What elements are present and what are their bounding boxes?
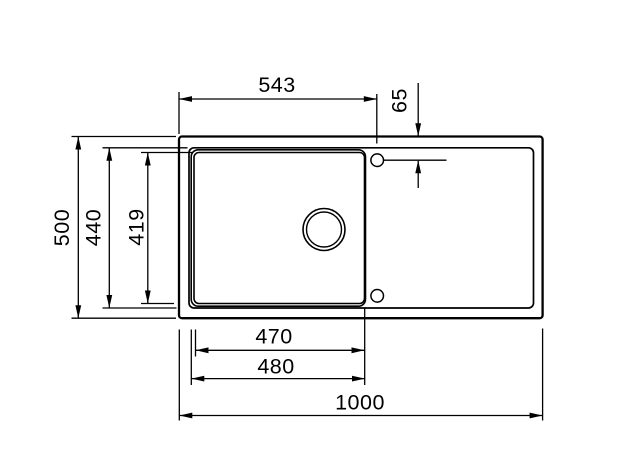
arrowhead-down — [75, 305, 81, 318]
dim-label-tap-hole-from-top: 65 — [388, 88, 412, 113]
tap-hole-top — [371, 154, 384, 167]
bowl-outer-edge — [191, 150, 365, 306]
bowl-inner-edge — [194, 153, 365, 304]
arrowhead-left — [179, 96, 192, 102]
dimension-543: 543 — [179, 73, 377, 144]
arrowhead-up — [415, 160, 421, 173]
arrowhead-down — [106, 295, 112, 308]
sink-plan-view — [179, 137, 543, 319]
drain-hole-outer-circle — [303, 209, 345, 251]
arrowhead-up — [75, 137, 81, 150]
sink-dimension-drawing: 543 65 500 440 — [0, 0, 640, 460]
arrowhead-left — [179, 413, 192, 419]
dimension-500: 500 — [50, 137, 176, 319]
arrowhead-left — [196, 347, 209, 353]
dim-label-overall-width: 1000 — [335, 391, 385, 415]
sink-rim-inner-edge — [189, 148, 534, 308]
drawing-canvas: 543 65 500 440 — [0, 0, 640, 460]
drain-hole-inner-circle — [307, 212, 342, 247]
arrowhead-right — [352, 376, 365, 382]
arrowhead-down — [415, 123, 421, 136]
arrowhead-right — [364, 96, 377, 102]
arrowhead-right — [352, 347, 365, 353]
sink-outer-edge — [179, 137, 543, 319]
arrowhead-left — [191, 376, 204, 382]
dim-label-bowl-axis-from-left: 543 — [258, 73, 295, 97]
arrowhead-down — [145, 291, 151, 304]
dim-label-overall-depth: 500 — [50, 209, 74, 246]
dim-label-inner-rim-depth: 440 — [82, 209, 106, 246]
dim-label-bowl-inner-depth: 419 — [125, 208, 149, 245]
tap-hole-bottom — [371, 290, 384, 303]
arrowhead-up — [106, 148, 112, 161]
arrowhead-right — [530, 413, 543, 419]
dim-label-bowl-outer-width: 480 — [257, 355, 294, 379]
arrowhead-up — [145, 153, 151, 166]
dimension-1000: 1000 — [179, 329, 542, 421]
dim-label-bowl-inner-width: 470 — [255, 325, 292, 349]
dimension-419: 419 — [125, 153, 193, 304]
